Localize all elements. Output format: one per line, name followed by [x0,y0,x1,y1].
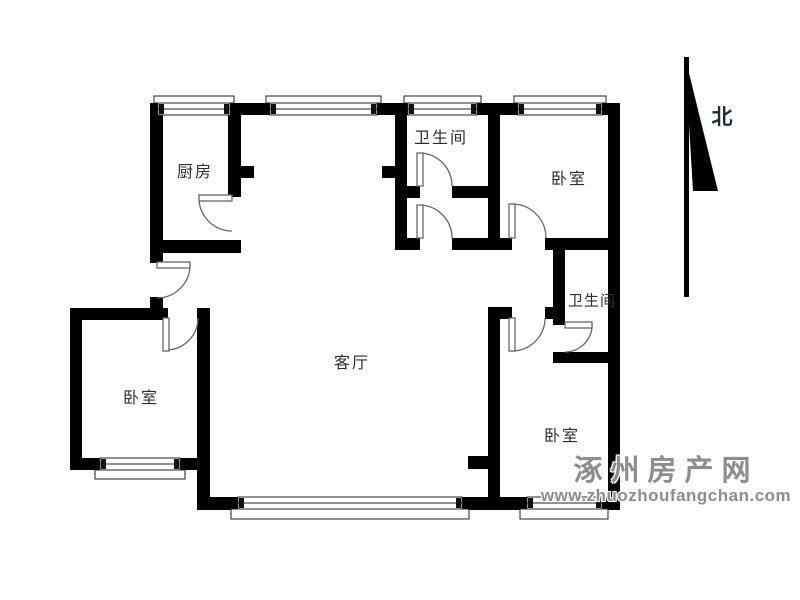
door-bedroom-top-right [509,204,546,238]
door-corridor [417,205,452,238]
compass-north-label: 北 [712,101,733,131]
watermark-site-name: 涿州房产网 [528,456,800,486]
north-arrow-icon [684,57,718,297]
door-kitchen [199,195,232,231]
door-bedroom-bottom-left [163,318,198,351]
watermark: 涿州房产网 www.zhuozhoufangchan.com [528,456,800,505]
door-bathroom-top [417,153,452,186]
door-bathroom-right [565,322,592,352]
floor-plan: 厨房 卫生间 卧室 客厅 卫生间 卧室 卧室 北 涿州房产网 www.zhuoz… [0,0,800,600]
walls-layer [70,103,620,510]
watermark-site-url: www.zhuozhoufangchan.com [528,487,800,505]
window-bedroom-top-right [514,96,606,115]
floor-plan-drawing [0,0,800,600]
door-bedroom-bottom-right [509,318,545,351]
door-entry [157,262,190,298]
room-label-kitchen: 厨房 [177,158,213,182]
room-label-living-room: 客厅 [334,349,370,373]
room-label-bathroom-top: 卫生间 [414,124,468,148]
room-label-bedroom-bottom-left: 卧室 [123,384,159,408]
window-kitchen [154,96,234,115]
room-label-bedroom-top-right: 卧室 [551,165,587,189]
window-bathroom-top [404,96,481,115]
room-label-bedroom-bottom-right: 卧室 [544,422,580,446]
window-bedroom-bottom-left [95,458,185,479]
window-living-bottom [231,497,469,519]
window-living-top [266,96,381,115]
room-label-bathroom-right: 卫生间 [568,290,616,311]
